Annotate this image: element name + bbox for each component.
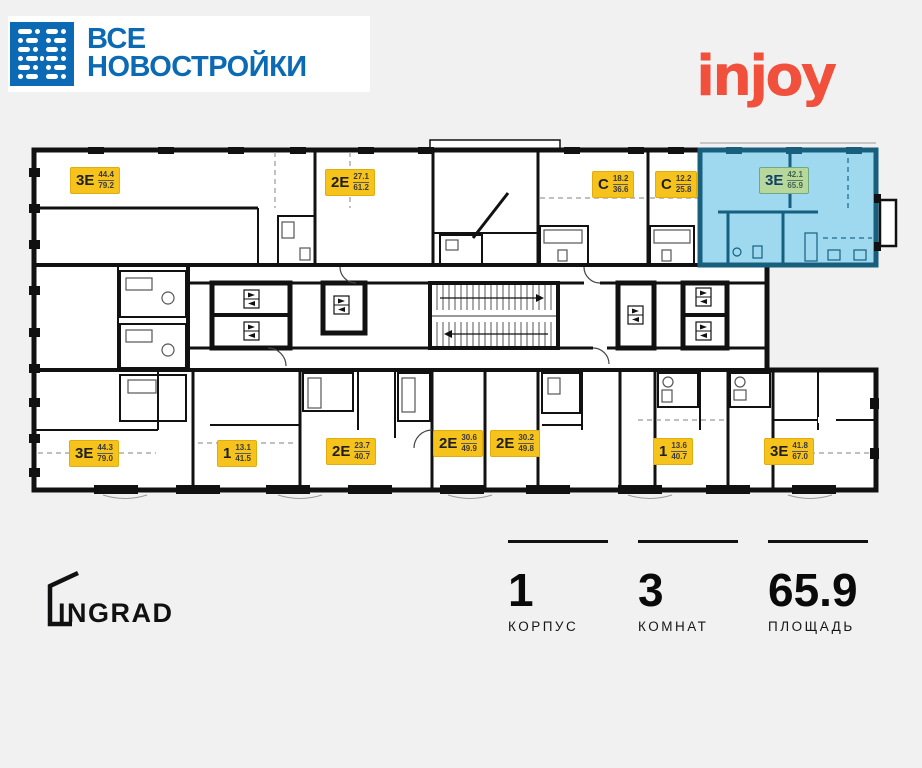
stat-value: 1 [508,567,628,613]
stat-rooms: 3 КОМНАТ [638,540,758,634]
area-total: 41.5 [235,454,251,464]
area-total: 67.0 [792,452,808,462]
area-living: 41.8 [792,441,808,452]
apartment-type: 2Е [332,443,350,460]
area-living: 44.4 [98,170,114,181]
stairs-icon [430,283,558,348]
apartment-badge-7[interactable]: 2Е 23.740.7 [326,438,376,465]
area-total: 65.9 [787,181,803,191]
page: ВСЕ НОВОСТРОЙКИ injoy [0,0,922,768]
area-living: 23.7 [354,441,370,452]
balcony [880,200,896,246]
area-living: 12.2 [676,174,692,185]
apartment-badge-10[interactable]: 1 13.640.7 [653,438,693,465]
area-living: 42.1 [787,170,803,181]
stat-divider [638,540,738,543]
highlighted-apartment[interactable] [700,147,876,265]
area-total: 79.2 [98,181,114,191]
apartment-badge-6[interactable]: 1 13.141.5 [217,440,257,467]
area-total: 49.8 [518,444,534,454]
brand-logo[interactable]: ВСЕ НОВОСТРОЙКИ [8,16,370,92]
apartment-type: С [598,176,609,193]
apartment-badge-11[interactable]: 3Е 41.867.0 [764,438,814,465]
area-total: 49.9 [461,444,477,454]
stat-divider [508,540,608,543]
brand-pixel-icon [10,22,74,86]
apartment-badge-8[interactable]: 2Е 30.649.9 [433,430,483,457]
stat-value: 3 [638,567,758,613]
area-living: 44.3 [97,443,113,454]
area-living: 30.2 [518,433,534,444]
apartment-type: 3Е [75,445,93,462]
brand-line1: ВСЕ [87,26,307,54]
area-living: 13.1 [235,443,251,454]
area-total: 79.0 [97,454,113,464]
stat-label: ПЛОЩАДЬ [768,619,888,634]
stat-divider [768,540,868,543]
apartment-type: 3Е [770,443,788,460]
apartment-type: 3Е [76,172,94,189]
apartment-type: 2Е [439,435,457,452]
brand-title: ВСЕ НОВОСТРОЙКИ [87,26,307,81]
apartment-type: 2Е [496,435,514,452]
apartment-type: 3Е [765,172,783,189]
stat-area: 65.9 ПЛОЩАДЬ [768,540,888,634]
area-total: 40.7 [354,452,370,462]
apartment-badge-3[interactable]: С 12.225.8 [655,171,697,198]
apartment-type: 2Е [331,174,349,191]
balcony-arc [103,495,832,499]
stat-label: КОРПУС [508,619,628,634]
developer-name: INGRAD [58,600,174,628]
apartment-type: 1 [659,443,667,460]
stat-label: КОМНАТ [638,619,758,634]
complex-logo: injoy [696,44,834,109]
apartment-badge-0[interactable]: 3Е 44.479.2 [70,167,120,194]
apartment-type: 1 [223,445,231,462]
apartment-badge-2[interactable]: С 18.236.6 [592,171,634,198]
apartment-badge-5[interactable]: 3Е 44.379.0 [69,440,119,467]
area-living: 13.6 [671,441,687,452]
stat-value: 65.9 [768,567,888,613]
area-total: 61.2 [353,183,369,193]
developer-logo: INGRAD [40,568,174,628]
apartment-badge-9[interactable]: 2Е 30.249.8 [490,430,540,457]
area-total: 40.7 [671,452,687,462]
area-total: 25.8 [676,185,692,195]
apartment-badge-1[interactable]: 2Е 27.161.2 [325,169,375,196]
stat-korpus: 1 КОРПУС [508,540,628,634]
area-living: 18.2 [613,174,629,185]
area-living: 27.1 [353,172,369,183]
area-living: 30.6 [461,433,477,444]
area-total: 36.6 [613,185,629,195]
apartment-type: С [661,176,672,193]
apartment-badge-4-highlighted[interactable]: 3Е 42.165.9 [759,167,809,194]
brand-line2: НОВОСТРОЙКИ [87,54,307,82]
